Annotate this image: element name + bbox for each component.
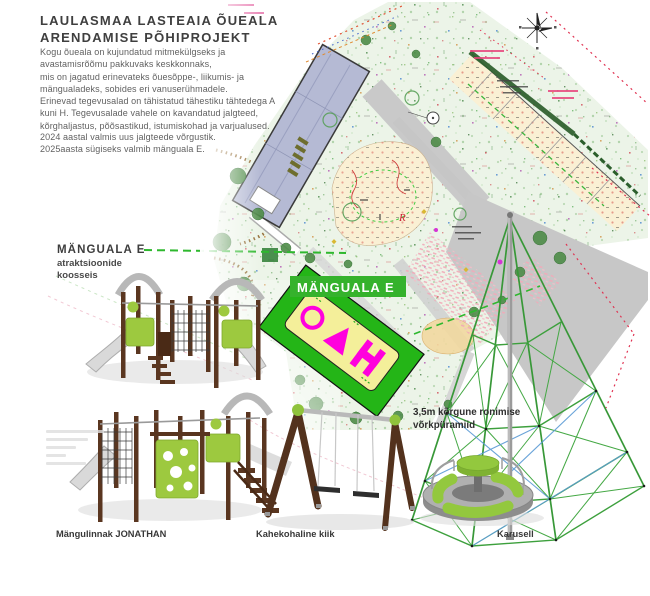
playarea-e-label: MÄNGUALA E [290,276,406,297]
castle-caption: Mängulinnak JONATHAN [56,529,166,539]
playarea-e-label-text: MÄNGUALA E [297,280,395,295]
pyramid-note: 3,5m kõrgune ronimise võrkpüramiid [413,407,520,432]
carousel-render [420,456,544,527]
swing-caption: Kahekohaline kiik [256,529,335,539]
intro-paragraph-3: 2024 aastal valmis uus jalgteede võrgust… [40,131,350,156]
playarea-heading: MÄNGUALA E [57,244,146,256]
intro-paragraph-2: Erinevad tegevusalad on tähistatud tähes… [40,95,350,132]
map-area-letter: R [398,212,406,224]
intro-paragraph-1: Kogu õueala on kujundatud mitmekülgseks … [40,46,350,96]
project-sheet: R MÄNGUALA E [0,0,650,596]
carousel-caption: Karusell [497,529,534,539]
watermark-text [46,430,104,470]
playarea-subheading: atraktsioonide koosseis [57,258,122,282]
page-title: LAULASMAA LASTEAIA ÕUEALA ARENDAMISE PÕH… [40,13,278,46]
dark-green-plot [262,248,278,262]
